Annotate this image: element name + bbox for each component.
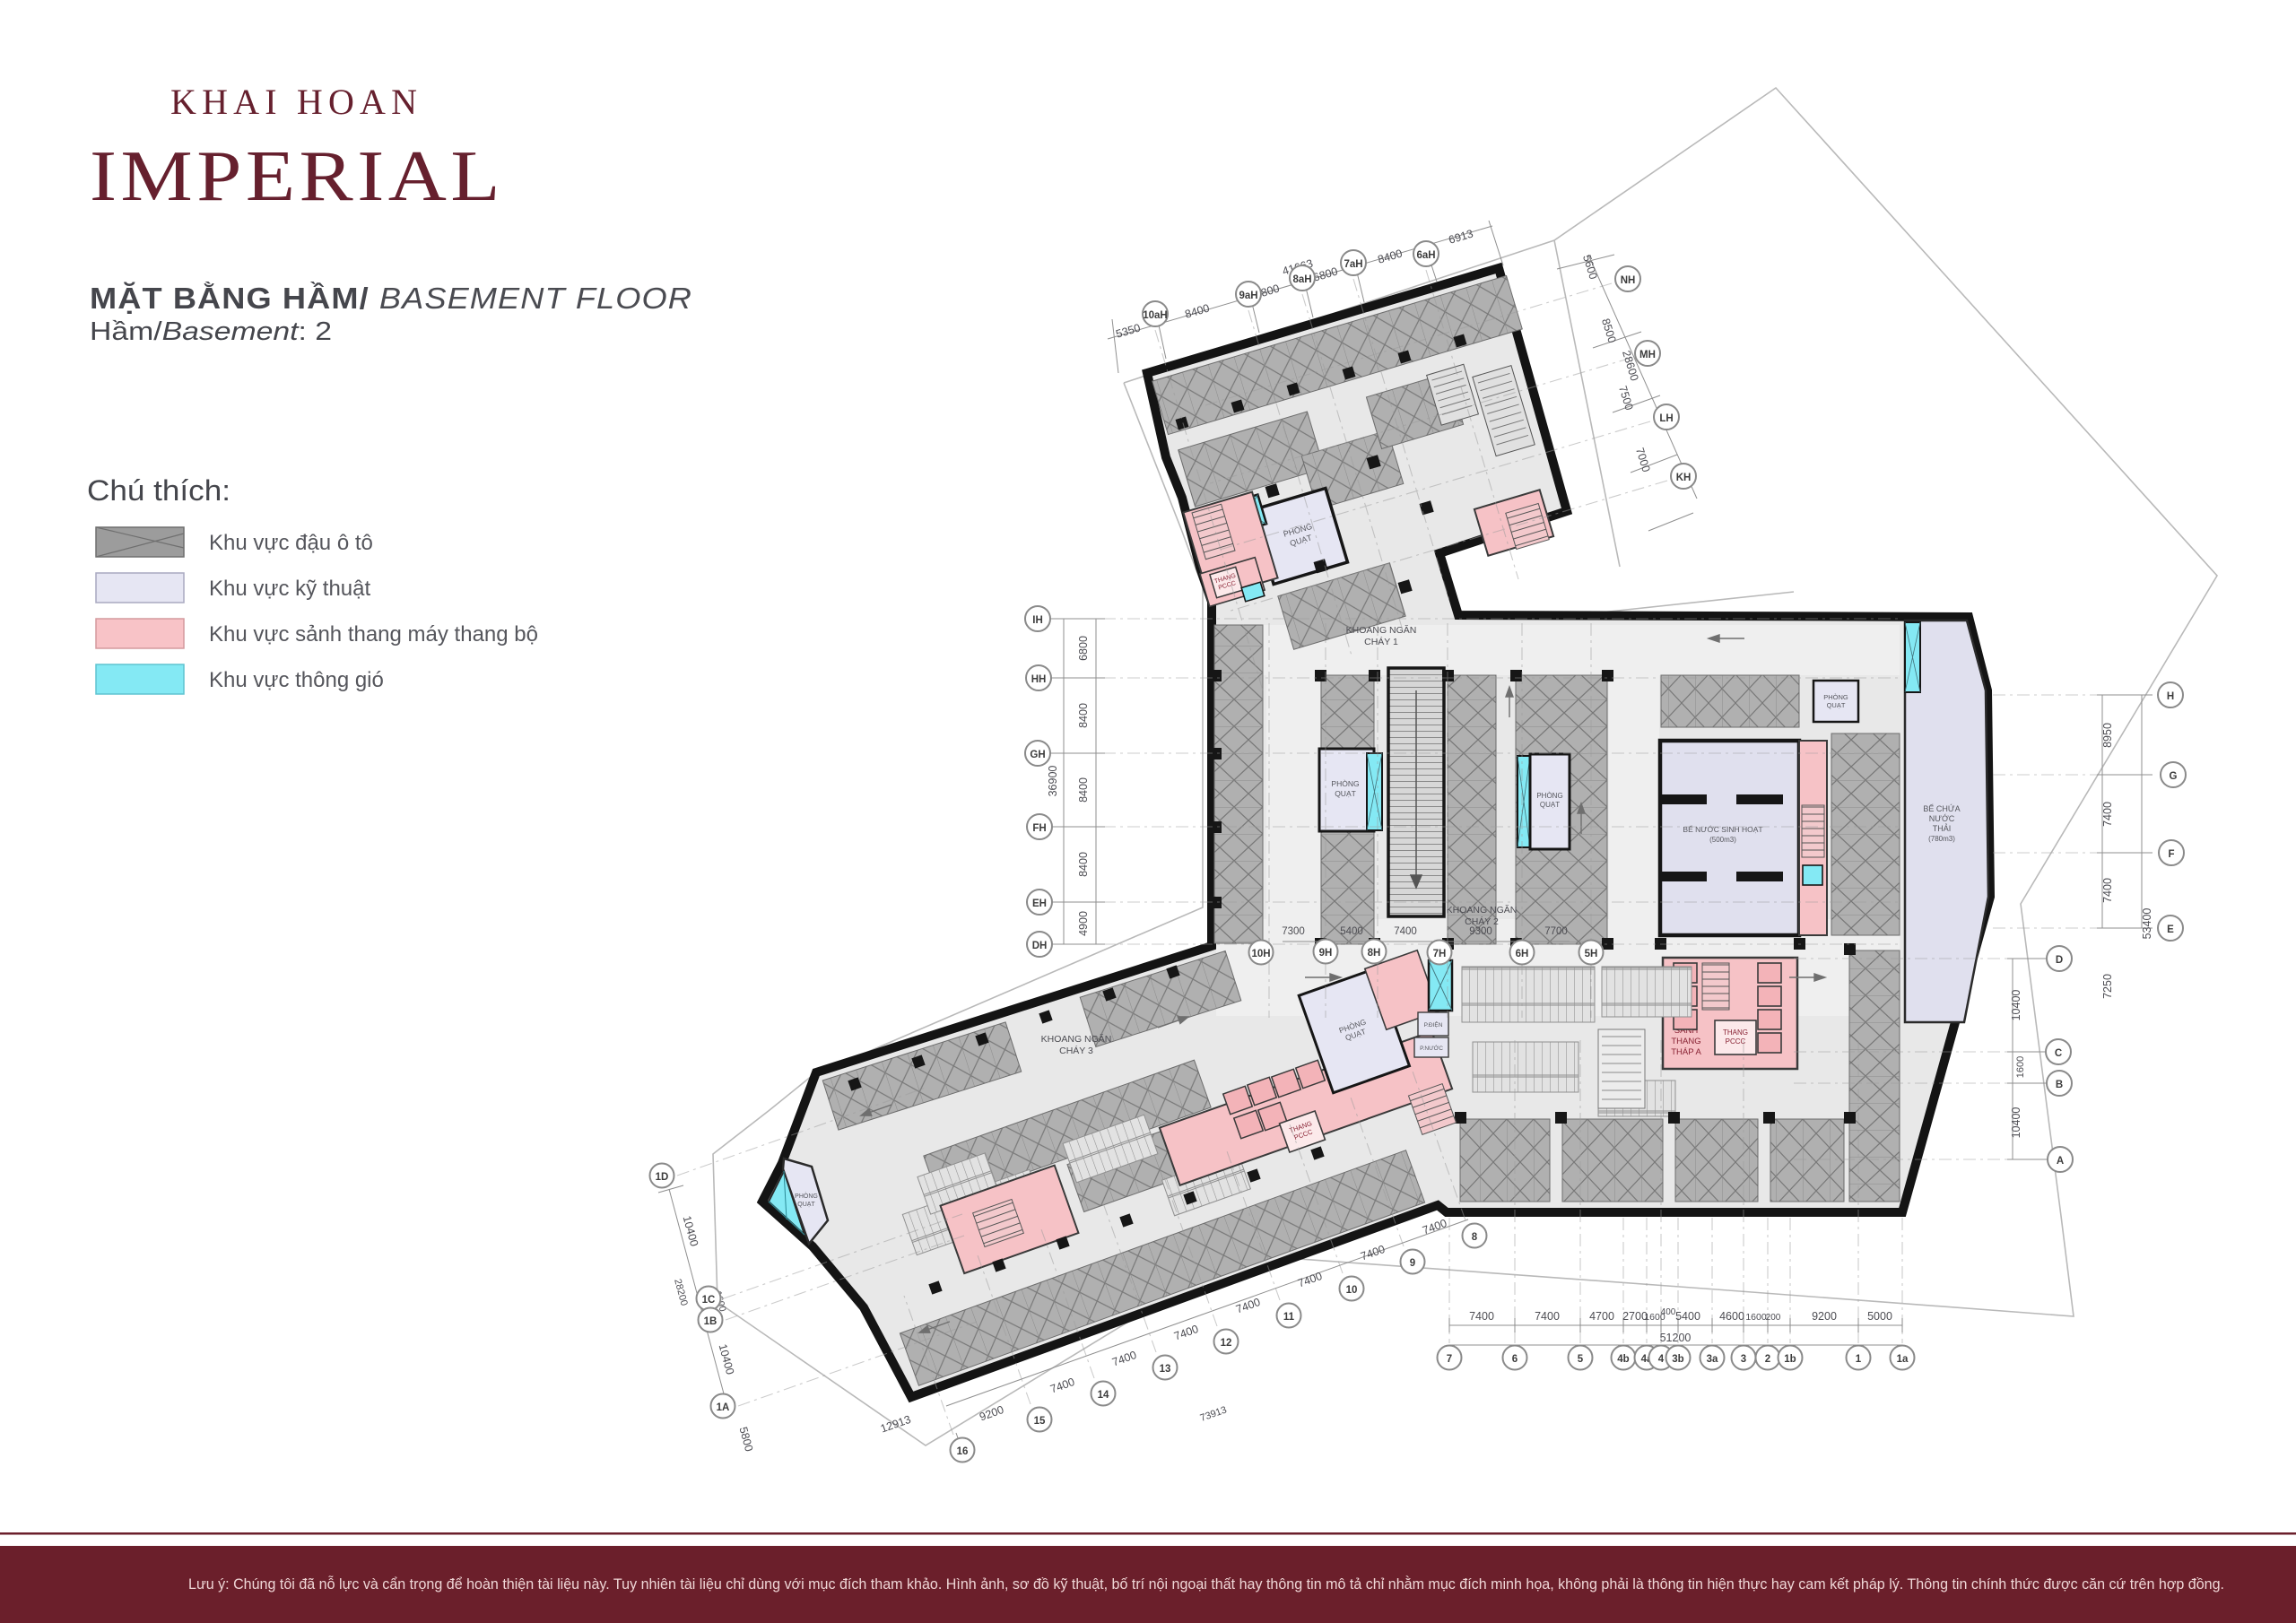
svg-text:10400: 10400 (2010, 1107, 2022, 1139)
svg-text:3a: 3a (1707, 1354, 1718, 1365)
svg-text:Hầm/Basement: 2: Hầm/Basement: 2 (90, 317, 332, 346)
svg-text:7400: 7400 (1394, 926, 1417, 937)
svg-text:8aH: 8aH (1292, 274, 1311, 285)
svg-text:FH: FH (1032, 823, 1046, 834)
svg-text:THANG: THANG (1723, 1028, 1748, 1037)
svg-text:7250: 7250 (2101, 974, 2114, 999)
svg-text:B: B (2056, 1080, 2063, 1090)
svg-text:10400: 10400 (2010, 990, 2022, 1021)
svg-text:4700: 4700 (1589, 1310, 1614, 1323)
svg-text:400: 400 (1661, 1307, 1676, 1317)
svg-text:MẶT BẰNG HẦM/ BASEMENT FLOOR: MẶT BẰNG HẦM/ BASEMENT FLOOR (90, 282, 692, 315)
svg-text:5400: 5400 (1675, 1310, 1700, 1323)
svg-text:PCCC: PCCC (1726, 1037, 1746, 1046)
svg-text:9: 9 (1410, 1258, 1415, 1269)
svg-text:3: 3 (1741, 1354, 1746, 1365)
svg-text:LH: LH (1659, 413, 1673, 424)
svg-text:QUẠT: QUẠT (1540, 801, 1560, 809)
svg-text:4900: 4900 (1077, 911, 1090, 936)
svg-text:10H: 10H (1251, 949, 1270, 959)
svg-text:PHÒNG: PHÒNG (1331, 779, 1359, 788)
svg-text:QUẠT: QUẠT (1827, 701, 1846, 709)
svg-text:BỂ CHỨA: BỂ CHỨA (1923, 803, 1960, 813)
svg-text:PHÒNG: PHÒNG (795, 1192, 818, 1200)
svg-text:6aH: 6aH (1416, 250, 1435, 261)
svg-text:P.NƯỚC: P.NƯỚC (1420, 1044, 1443, 1052)
svg-text:1B: 1B (704, 1316, 717, 1327)
svg-text:15: 15 (1034, 1416, 1046, 1427)
svg-text:E: E (2167, 924, 2174, 935)
svg-text:6: 6 (1512, 1354, 1518, 1365)
svg-text:6800: 6800 (1077, 636, 1090, 661)
svg-text:10aH: 10aH (1143, 310, 1168, 321)
svg-text:NƯỚC: NƯỚC (1929, 814, 1955, 823)
svg-text:PHÒNG: PHÒNG (1823, 693, 1848, 701)
svg-text:1: 1 (1856, 1354, 1862, 1365)
svg-text:D: D (2056, 955, 2063, 966)
svg-text:1C: 1C (702, 1295, 716, 1306)
svg-text:7H: 7H (1433, 949, 1447, 959)
svg-text:13: 13 (1160, 1364, 1171, 1375)
svg-text:9aH: 9aH (1239, 291, 1257, 301)
svg-text:8400: 8400 (1077, 703, 1090, 728)
svg-text:7aH: 7aH (1344, 259, 1362, 270)
svg-text:5H: 5H (1585, 949, 1598, 959)
svg-text:(780m3): (780m3) (1928, 835, 1955, 843)
svg-text:P.ĐIỆN: P.ĐIỆN (1424, 1020, 1443, 1028)
svg-text:4b: 4b (1617, 1354, 1629, 1365)
svg-text:9H: 9H (1319, 948, 1333, 959)
svg-text:A: A (2057, 1156, 2064, 1167)
svg-text:16: 16 (957, 1446, 969, 1457)
svg-text:1D: 1D (656, 1172, 669, 1183)
svg-text:14: 14 (1098, 1390, 1109, 1401)
svg-text:NH: NH (1621, 275, 1636, 286)
svg-text:KH: KH (1676, 473, 1692, 483)
svg-text:1a: 1a (1897, 1354, 1909, 1365)
svg-text:QUẠT: QUẠT (1335, 789, 1356, 798)
svg-text:12: 12 (1221, 1338, 1232, 1349)
svg-text:5400: 5400 (1340, 926, 1363, 937)
svg-text:8: 8 (1472, 1232, 1478, 1243)
svg-text:7: 7 (1447, 1354, 1452, 1365)
svg-text:Chú thích:: Chú thích: (87, 474, 230, 507)
svg-text:(500m3): (500m3) (1709, 836, 1736, 844)
svg-text:7400: 7400 (1469, 1310, 1494, 1323)
svg-text:KHOANG NGĂN: KHOANG NGĂN (1447, 904, 1518, 916)
svg-text:7400: 7400 (2101, 802, 2114, 827)
svg-text:KHOANG NGĂN: KHOANG NGĂN (1346, 624, 1417, 636)
svg-text:MH: MH (1639, 350, 1656, 360)
svg-text:PHÒNG: PHÒNG (1536, 792, 1562, 800)
svg-text:9200: 9200 (1812, 1310, 1837, 1323)
svg-text:8H: 8H (1368, 948, 1381, 959)
svg-text:THANG: THANG (1671, 1037, 1700, 1046)
svg-text:Khu vực đậu ô tô: Khu vực đậu ô tô (209, 531, 373, 555)
svg-text:1600: 1600 (1745, 1312, 1767, 1323)
svg-text:8950: 8950 (2101, 723, 2114, 748)
svg-text:GH: GH (1030, 750, 1045, 760)
svg-text:7400: 7400 (1535, 1310, 1560, 1323)
svg-text:5: 5 (1578, 1354, 1584, 1365)
svg-text:53400: 53400 (2141, 908, 2153, 940)
svg-text:3b: 3b (1672, 1354, 1683, 1365)
svg-text:51200: 51200 (1660, 1332, 1692, 1344)
svg-text:4600: 4600 (1719, 1310, 1744, 1323)
svg-text:H: H (2167, 691, 2174, 702)
svg-text:THÁP A: THÁP A (1671, 1047, 1701, 1057)
svg-text:1A: 1A (717, 1402, 730, 1413)
svg-text:7700: 7700 (1544, 926, 1568, 937)
svg-text:Khu vực sảnh thang máy thang b: Khu vực sảnh thang máy thang bộ (209, 622, 538, 647)
svg-text:2: 2 (1765, 1354, 1770, 1365)
svg-text:4: 4 (1658, 1354, 1665, 1365)
svg-text:DH: DH (1032, 941, 1048, 951)
svg-text:G: G (2170, 771, 2178, 782)
svg-text:CHÁY 1: CHÁY 1 (1364, 636, 1398, 647)
svg-text:KHOANG NGĂN: KHOANG NGĂN (1041, 1033, 1112, 1045)
svg-text:11: 11 (1283, 1312, 1295, 1323)
svg-text:200: 200 (1766, 1313, 1781, 1323)
svg-text:IH: IH (1032, 615, 1043, 626)
svg-text:36900: 36900 (1047, 766, 1059, 797)
svg-text:5000: 5000 (1867, 1310, 1892, 1323)
svg-text:BỂ NƯỚC SINH HOẠT: BỂ NƯỚC SINH HOẠT (1683, 824, 1762, 834)
svg-text:QUẠT: QUẠT (797, 1202, 815, 1208)
svg-text:IMPERIAL: IMPERIAL (90, 137, 504, 216)
svg-text:6H: 6H (1516, 949, 1529, 959)
svg-text:C: C (2055, 1048, 2062, 1059)
svg-text:KHAI HOAN: KHAI HOAN (170, 82, 423, 122)
svg-text:7400: 7400 (2101, 878, 2114, 903)
svg-text:7300: 7300 (1282, 926, 1305, 937)
svg-text:CHÁY 3: CHÁY 3 (1059, 1045, 1093, 1056)
svg-text:Khu vực kỹ thuật: Khu vực kỹ thuật (209, 577, 370, 601)
svg-text:9300: 9300 (1469, 926, 1492, 937)
svg-text:Khu vực thông gió: Khu vực thông gió (209, 668, 384, 692)
svg-text:8400: 8400 (1077, 852, 1090, 877)
svg-text:10: 10 (1346, 1285, 1358, 1296)
svg-text:EH: EH (1032, 898, 1047, 909)
svg-text:HH: HH (1031, 674, 1047, 685)
svg-text:Lưu ý: Chúng tôi đã nỗ lực và: Lưu ý: Chúng tôi đã nỗ lực và cẩn trọng … (188, 1575, 2224, 1593)
svg-text:8400: 8400 (1077, 777, 1090, 803)
svg-text:THẢI: THẢI (1933, 823, 1952, 833)
svg-text:F: F (2168, 849, 2174, 860)
svg-text:1600: 1600 (2015, 1056, 2026, 1078)
svg-text:1b: 1b (1784, 1354, 1796, 1365)
